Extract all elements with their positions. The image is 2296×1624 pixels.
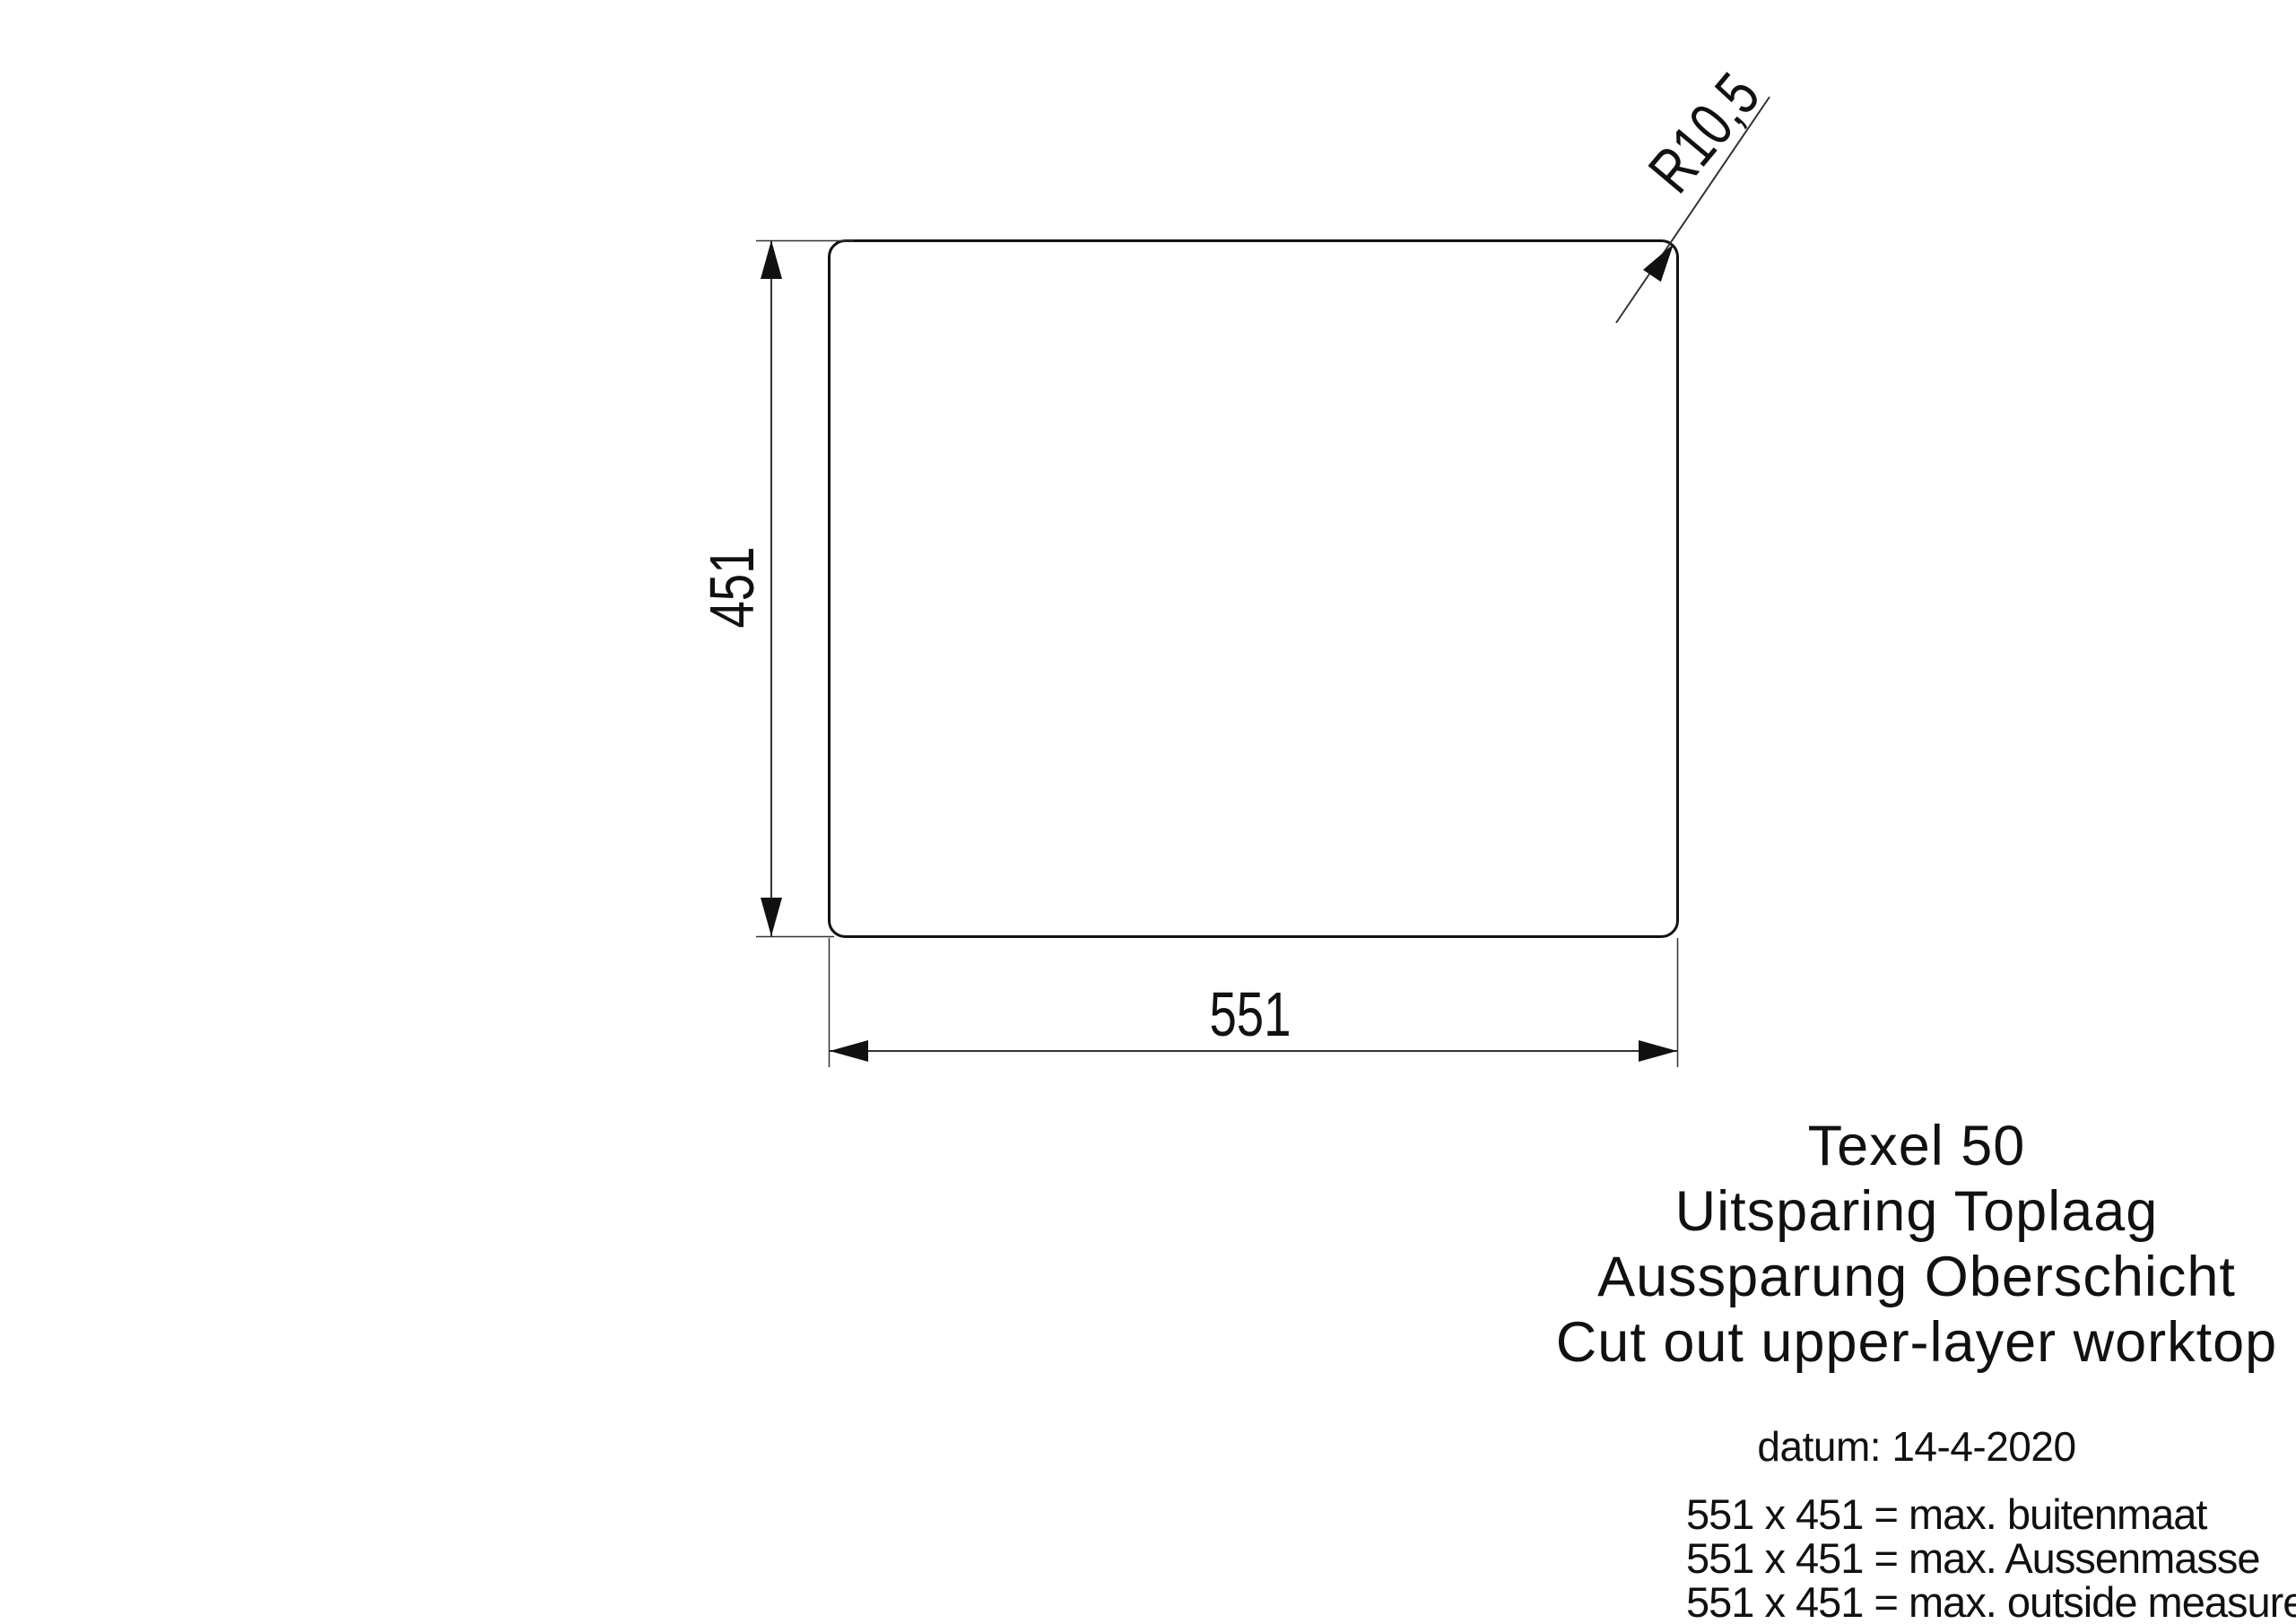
note-line-nl: 551 x 451 = max. buitenmaat [1686, 1492, 2296, 1536]
note-line-en: 551 x 451 = max. outside measure [1686, 1580, 2296, 1624]
height-dim-arrow-bottom [761, 898, 782, 936]
height-dim-arrow-top [761, 240, 782, 279]
drawing-sheet: 451 551 R10,5 Texel 50 Uitsparing Toplaa… [0, 0, 2296, 1624]
height-dim-label: 451 [696, 517, 768, 657]
title-block: Texel 50 Uitsparing Toplaag Aussparung O… [1378, 1114, 2296, 1376]
subtitle-de: Aussparung Oberschicht [1378, 1245, 2296, 1310]
product-title: Texel 50 [1378, 1114, 2296, 1179]
note-line-de: 551 x 451 = max. Aussenmasse [1686, 1536, 2296, 1580]
cutout-outline [830, 241, 1678, 937]
width-dim-arrow-right [1639, 1040, 1677, 1062]
subtitle-en: Cut out upper-layer worktop [1378, 1310, 2296, 1376]
cad-linework [0, 0, 2296, 1624]
width-dim-arrow-left [830, 1040, 868, 1062]
subtitle-nl: Uitsparing Toplaag [1378, 1179, 2296, 1245]
date-line: datum: 14-4-2020 [1468, 1424, 2296, 1469]
notes-block: 551 x 451 = max. buitenmaat 551 x 451 = … [1686, 1492, 2296, 1624]
width-dim-label: 551 [1180, 978, 1320, 1050]
